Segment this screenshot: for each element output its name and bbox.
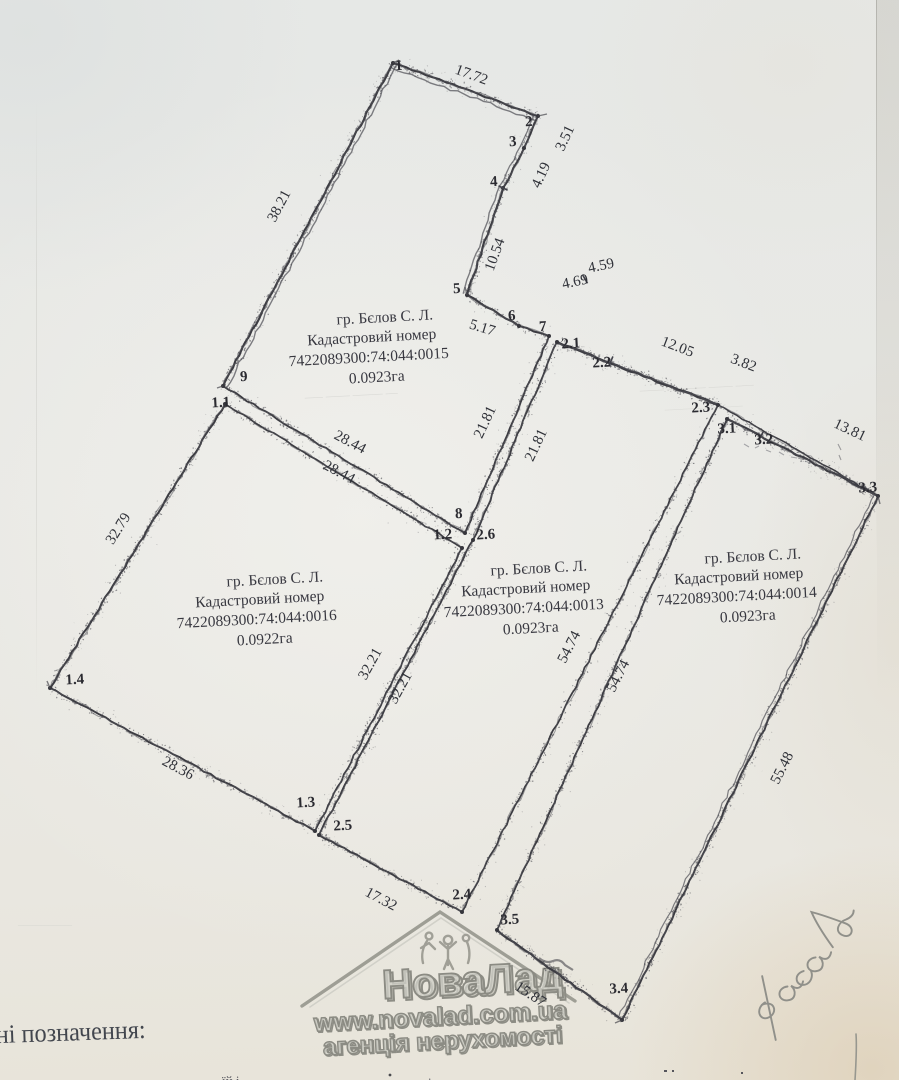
svg-text:їй і: їй і: [222, 1073, 240, 1080]
svg-text:10.54: 10.54: [482, 236, 509, 274]
svg-text:1.4: 1.4: [65, 671, 85, 688]
svg-text:2.6: 2.6: [476, 526, 496, 543]
svg-text:32.79: 32.79: [103, 510, 134, 547]
svg-text:гр. Бєлов С. Л.: гр. Бєлов С. Л.: [704, 545, 801, 567]
svg-text:3: 3: [509, 134, 517, 150]
svg-text:9: 9: [240, 369, 248, 385]
svg-text:гр. Бєлов С. Л.: гр. Бєлов С. Л.: [226, 568, 323, 590]
svg-text:0.0923га: 0.0923га: [502, 619, 559, 639]
svg-text:3.4: 3.4: [609, 980, 629, 997]
svg-text:1.3: 1.3: [296, 795, 316, 812]
svg-text:2.5: 2.5: [333, 818, 353, 835]
svg-text:3.3: 3.3: [858, 480, 878, 497]
svg-text:2.4: 2.4: [452, 886, 472, 903]
svg-text:21.81: 21.81: [522, 427, 551, 464]
svg-text:55.48: 55.48: [768, 750, 798, 787]
svg-text:21.81: 21.81: [471, 404, 500, 441]
svg-text:2.2: 2.2: [592, 355, 612, 372]
svg-text:7: 7: [539, 319, 548, 335]
svg-text:4.19: 4.19: [529, 160, 555, 191]
svg-text:1.1: 1.1: [211, 395, 231, 412]
svg-text:5: 5: [453, 281, 461, 297]
svg-text:28.44: 28.44: [331, 427, 369, 457]
svg-text:4.59: 4.59: [587, 256, 616, 277]
svg-text:5.17: 5.17: [467, 317, 497, 340]
svg-text:3.5: 3.5: [500, 912, 520, 929]
svg-text:гр. Бєлов С. Л.: гр. Бєлов С. Л.: [336, 306, 433, 328]
svg-text:32.21: 32.21: [355, 645, 385, 682]
svg-text:17.32: 17.32: [362, 884, 399, 914]
svg-text:8: 8: [455, 506, 463, 522]
svg-text:17.72: 17.72: [453, 62, 490, 89]
svg-text:12.05: 12.05: [659, 334, 696, 361]
svg-text:0.0923га: 0.0923га: [719, 607, 776, 627]
svg-text:28.36: 28.36: [159, 753, 197, 783]
svg-text:ні позначення:: ні позначення:: [0, 1015, 146, 1049]
svg-text:54.74: 54.74: [604, 657, 634, 695]
svg-text:4: 4: [490, 174, 499, 190]
svg-text:3.82: 3.82: [728, 351, 758, 375]
svg-text:2.3: 2.3: [691, 400, 711, 417]
svg-text:—– —— –—— —: —– —— –—— —: [303, 385, 399, 404]
svg-text:3.2: 3.2: [754, 432, 774, 449]
svg-text:гр. Бєлов С. Л.: гр. Бєлов С. Л.: [490, 557, 587, 579]
svg-text:13.81: 13.81: [831, 416, 868, 445]
svg-text:3.51: 3.51: [553, 123, 579, 154]
svg-text:2.1: 2.1: [561, 336, 581, 353]
svg-text:6: 6: [508, 308, 517, 324]
svg-text:0.0922га: 0.0922га: [236, 630, 293, 650]
svg-text:38.21: 38.21: [264, 187, 294, 224]
svg-text:3.1: 3.1: [717, 421, 737, 438]
svg-text:із: із: [428, 1075, 437, 1080]
svg-text:54.74: 54.74: [555, 628, 585, 666]
svg-text:2: 2: [525, 114, 533, 130]
svg-text:4.69: 4.69: [561, 272, 590, 293]
svg-text:1.2: 1.2: [433, 527, 453, 544]
svg-text:0.0923га: 0.0923га: [348, 368, 405, 388]
svg-text:–—–——–: –—–——–: [17, 917, 73, 931]
